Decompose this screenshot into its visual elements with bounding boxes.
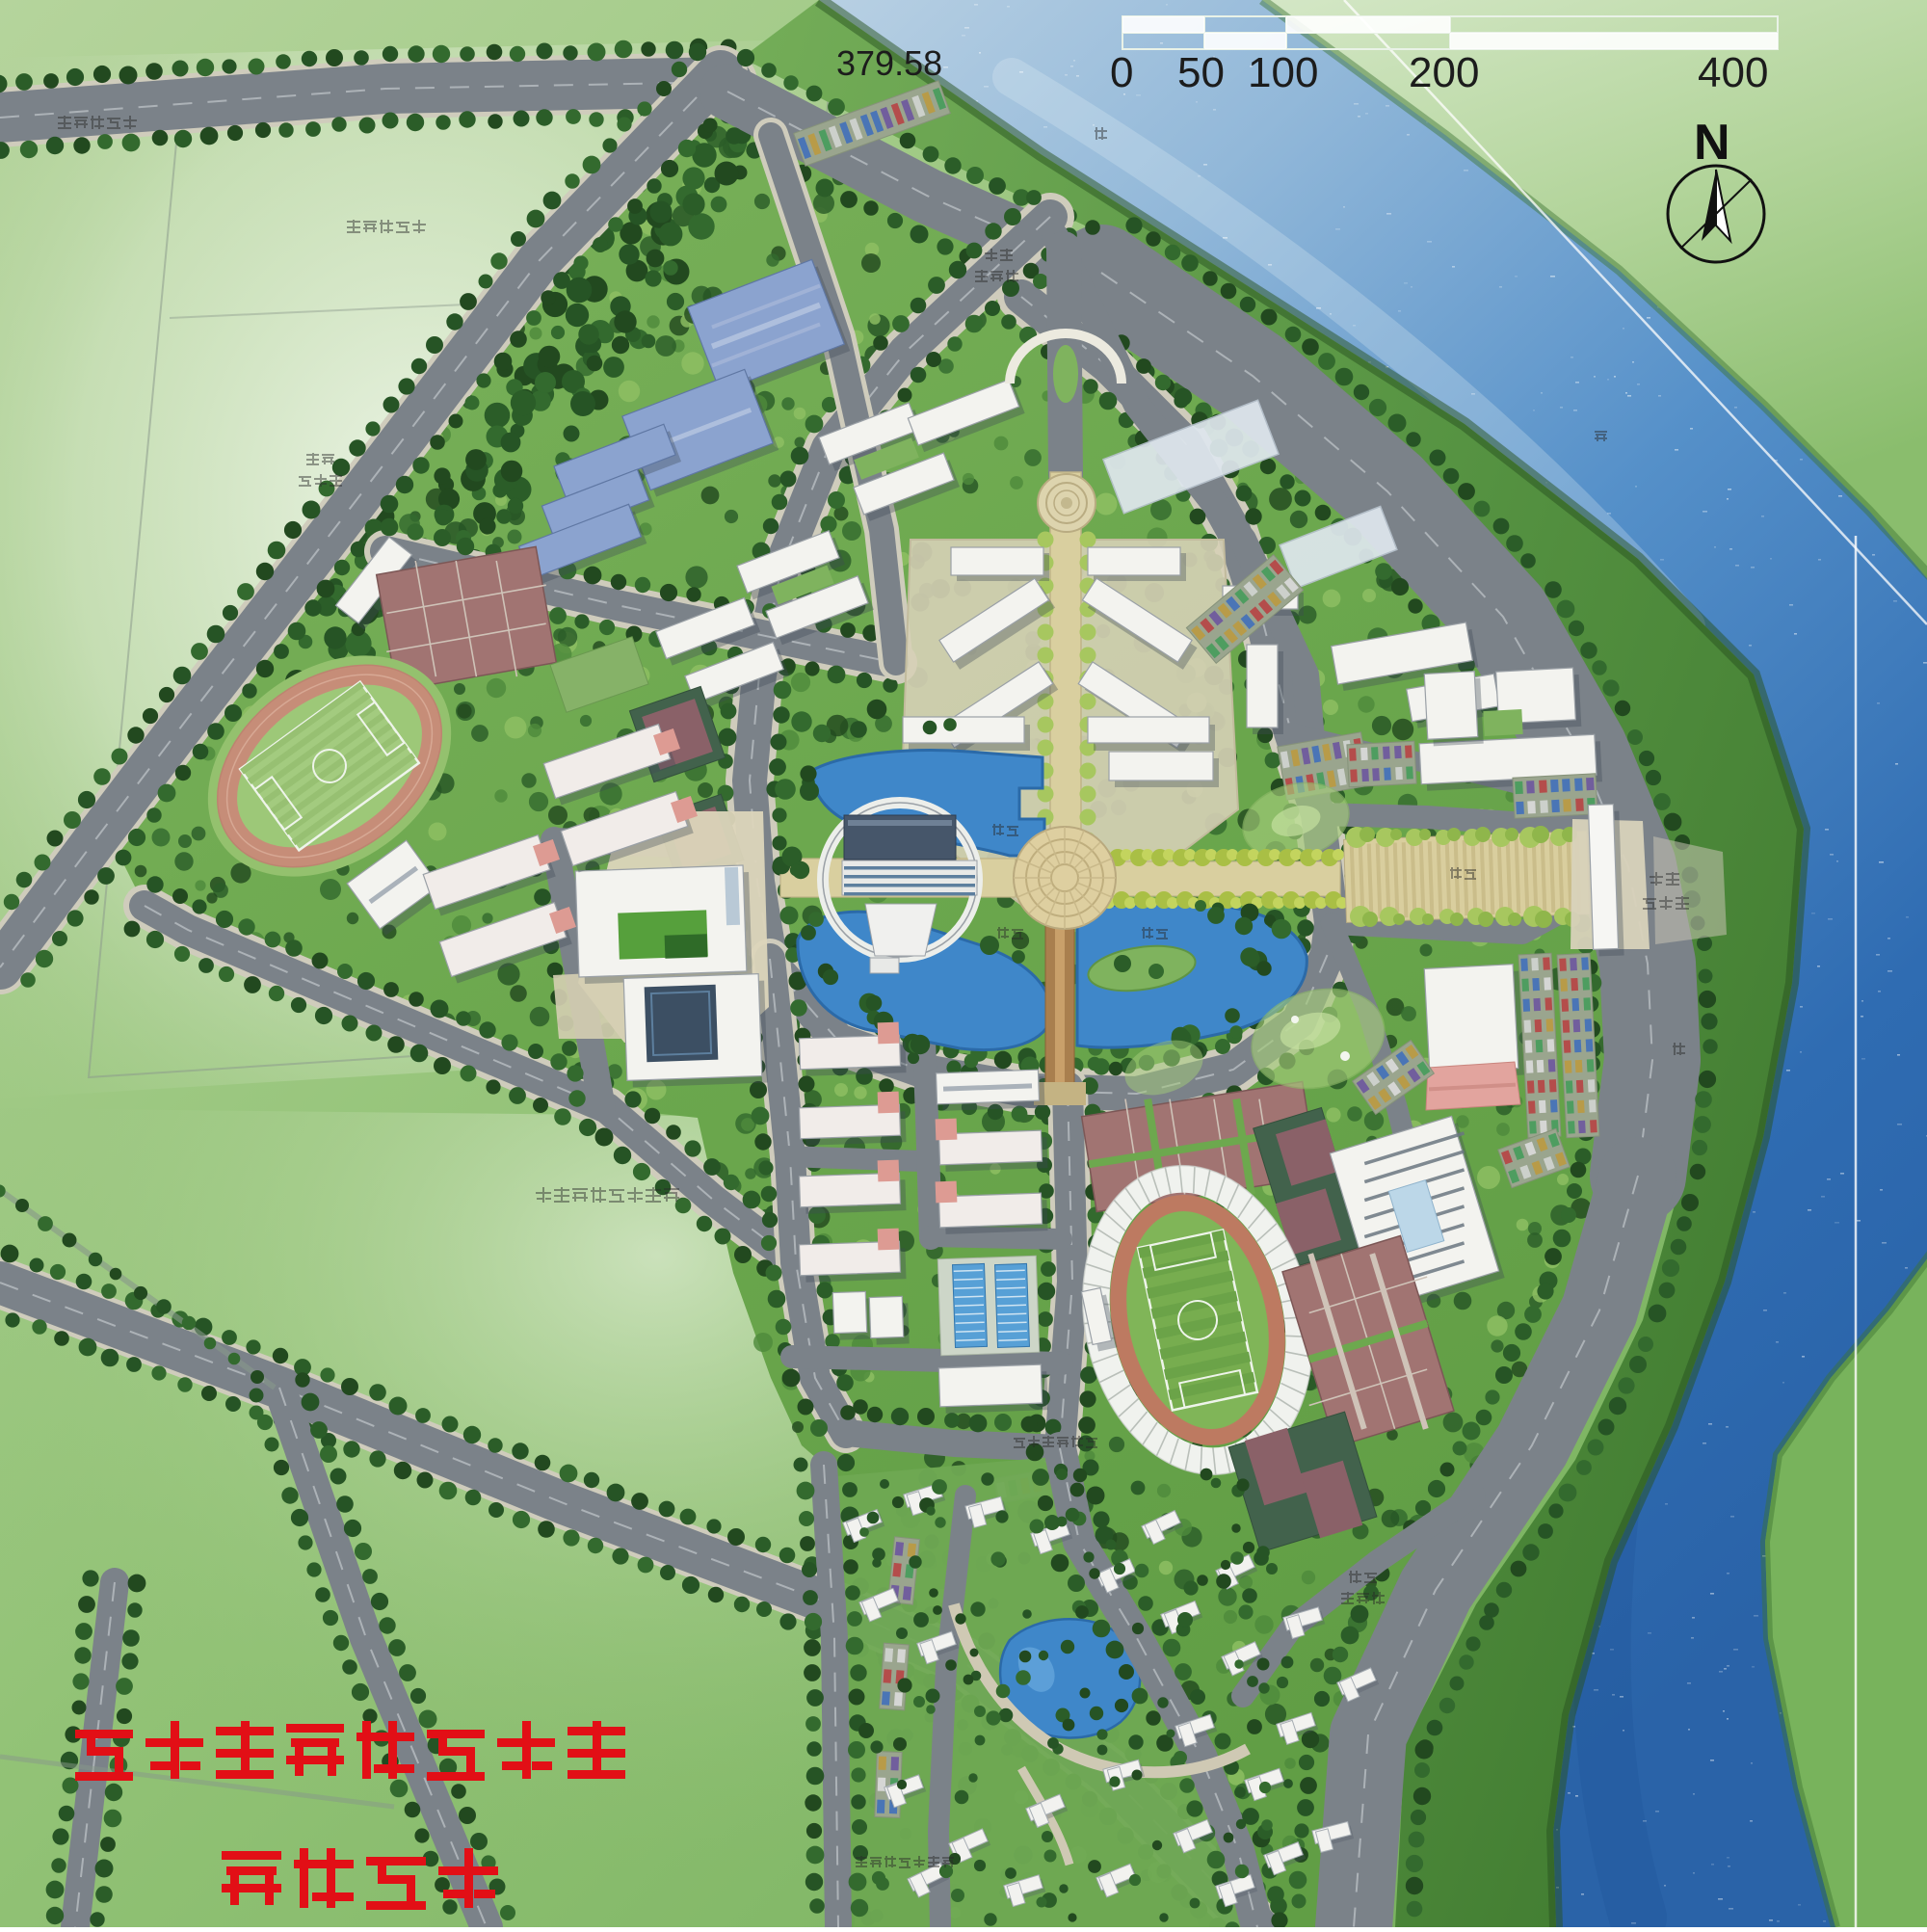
svg-text:200: 200: [1409, 49, 1479, 96]
svg-text:379.58: 379.58: [836, 43, 942, 83]
svg-text:0: 0: [1110, 49, 1133, 96]
svg-text:50: 50: [1177, 49, 1225, 96]
svg-text:400: 400: [1698, 49, 1768, 96]
svg-text:100: 100: [1248, 49, 1318, 96]
svg-text:N: N: [1694, 115, 1730, 171]
